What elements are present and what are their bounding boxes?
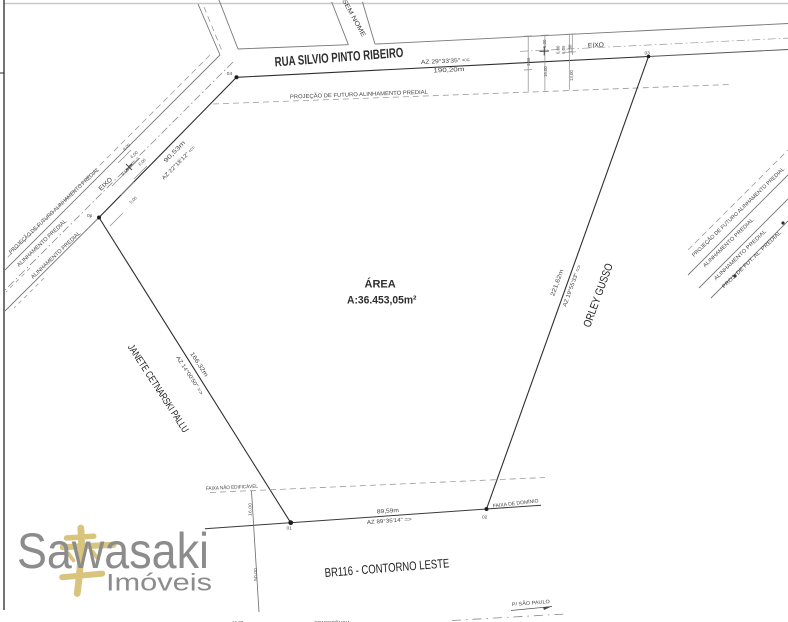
svg-text:02: 02 bbox=[482, 515, 488, 521]
svg-text:3,66: 3,66 bbox=[526, 57, 531, 66]
svg-text:6,00: 6,00 bbox=[556, 45, 561, 54]
svg-text:03: 03 bbox=[645, 51, 651, 57]
svg-text:EIXO: EIXO bbox=[588, 42, 604, 50]
svg-text:01: 01 bbox=[287, 526, 293, 532]
svg-text:Imóveis: Imóveis bbox=[106, 570, 212, 597]
svg-text:6,00: 6,00 bbox=[542, 39, 547, 48]
svg-text:1,50: 1,50 bbox=[568, 44, 573, 53]
svg-text:16,00: 16,00 bbox=[543, 66, 548, 77]
svg-text:6,09: 6,09 bbox=[561, 45, 566, 54]
svg-text:04: 04 bbox=[227, 71, 233, 77]
svg-text:16,00: 16,00 bbox=[248, 502, 253, 516]
svg-text:A:36.453,05m²: A:36.453,05m² bbox=[347, 295, 417, 307]
svg-text:13,00: 13,00 bbox=[569, 70, 574, 81]
svg-text:0p: 0p bbox=[87, 213, 93, 219]
svg-text:50,00: 50,00 bbox=[253, 567, 258, 581]
svg-text:ÁREA: ÁREA bbox=[365, 277, 396, 290]
